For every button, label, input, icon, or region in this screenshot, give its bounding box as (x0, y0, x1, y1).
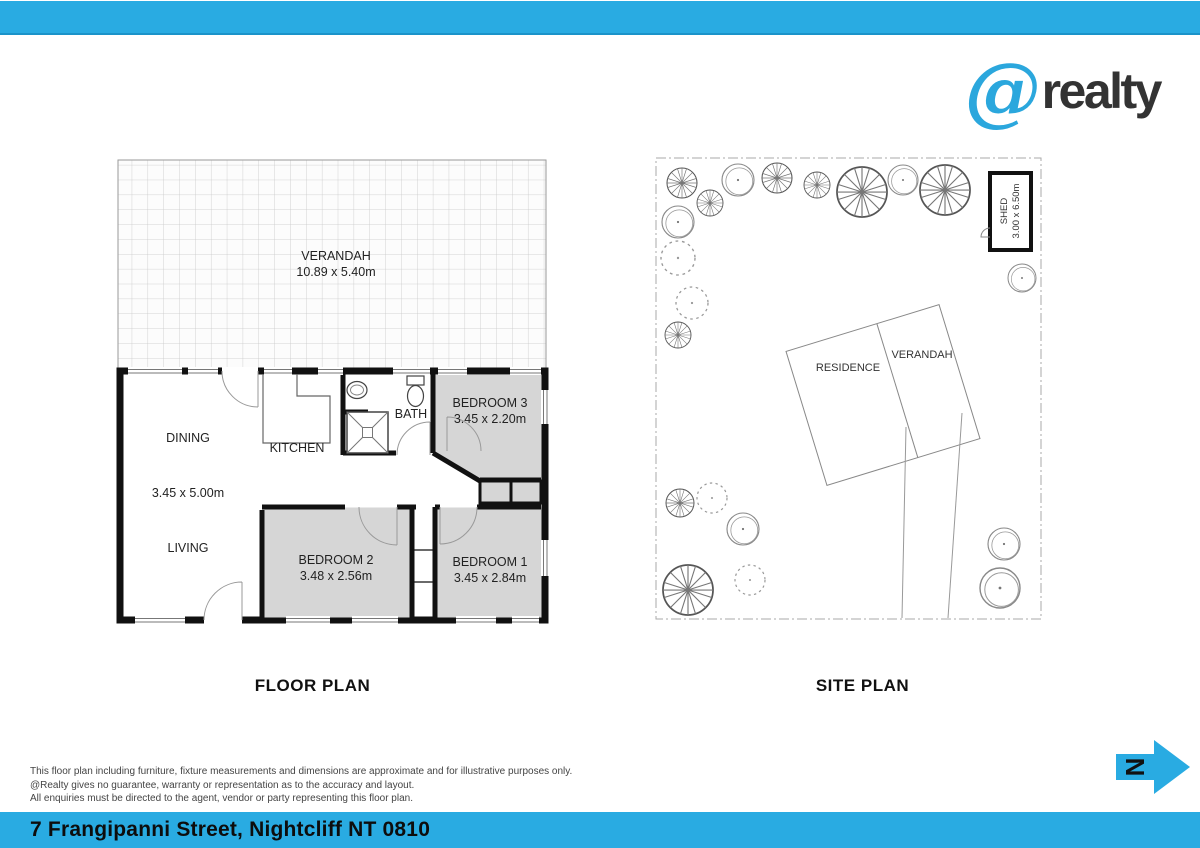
verandah-grid (118, 160, 546, 368)
logo-text: realty (1042, 62, 1160, 120)
tree-icon (697, 190, 723, 216)
realty-logo: @ realty (965, 56, 1160, 126)
site-plan-title: SITE PLAN (635, 676, 1090, 696)
disclaimer: This floor plan including furniture, fix… (30, 765, 572, 806)
bath-label: BATH (395, 407, 427, 421)
bedroom2-dims: 3.48 x 2.56m (300, 569, 372, 583)
tree-icon (888, 165, 918, 195)
tree-icon (980, 568, 1020, 608)
tree-icon (837, 167, 887, 217)
tree-icon (661, 241, 695, 275)
disclaimer-line-2: @Realty gives no guarantee, warranty or … (30, 779, 572, 793)
top-accent-bar (0, 1, 1200, 35)
verandah-dims: 10.89 x 5.40m (296, 265, 375, 279)
tree-icon (667, 168, 697, 198)
sink-icon (347, 382, 367, 399)
dining-label: DINING (166, 431, 210, 445)
tree-icon (727, 513, 759, 545)
disclaimer-line-3: All enquiries must be directed to the ag… (30, 792, 572, 806)
tree-icon (762, 163, 792, 193)
living-label: LIVING (168, 541, 209, 555)
tree-icon (988, 528, 1020, 560)
tree-icon (665, 322, 691, 348)
residence-block (786, 305, 980, 486)
north-label: N (1120, 758, 1150, 777)
tree-icon (697, 483, 727, 513)
tree-icon (722, 164, 754, 196)
property-address: 7 Frangipanni Street, Nightcliff NT 0810 (0, 812, 1200, 848)
bedroom1-dims: 3.45 x 2.84m (454, 571, 526, 585)
toilet-icon (407, 376, 424, 407)
tree-icon (735, 565, 765, 595)
site-verandah-label: VERANDAH (891, 349, 952, 361)
kitchen-label: KITCHEN (270, 441, 325, 455)
floor-plan-title: FLOOR PLAN (85, 676, 540, 696)
at-symbol-icon: @ (965, 56, 1041, 126)
address-bar: 7 Frangipanni Street, Nightcliff NT 0810 (0, 812, 1200, 848)
tree-icon (666, 489, 694, 517)
shed: SHED 3.00 x 6.50m (981, 173, 1031, 250)
bedroom1-label: BEDROOM 1 (452, 555, 527, 569)
verandah-label: VERANDAH (301, 249, 370, 263)
bedroom2-label: BEDROOM 2 (298, 553, 373, 567)
shed-dims: 3.00 x 6.50m (1011, 183, 1022, 238)
bedroom3-dims: 3.45 x 2.20m (454, 412, 526, 426)
floor-plan-drawing: VERANDAH 10.89 x 5.40m (100, 150, 570, 655)
tree-icon (1008, 264, 1036, 292)
shed-label: SHED (999, 198, 1010, 225)
tree-icon (676, 287, 708, 319)
bedroom3-label: BEDROOM 3 (452, 396, 527, 410)
shower-icon (347, 412, 388, 453)
tree-icon (804, 172, 830, 198)
living-dining-dims: 3.45 x 5.00m (152, 486, 224, 500)
north-arrow-icon: N (1116, 738, 1194, 796)
disclaimer-line-1: This floor plan including furniture, fix… (30, 765, 572, 779)
tree-icon (920, 165, 970, 215)
residence-outline (786, 305, 980, 486)
residence-label: RESIDENCE (816, 362, 880, 374)
site-plan-drawing: SHED 3.00 x 6.50m RESIDENCE VERANDAH (640, 150, 1060, 640)
tree-icon (662, 206, 694, 238)
tree-icon (663, 565, 713, 615)
